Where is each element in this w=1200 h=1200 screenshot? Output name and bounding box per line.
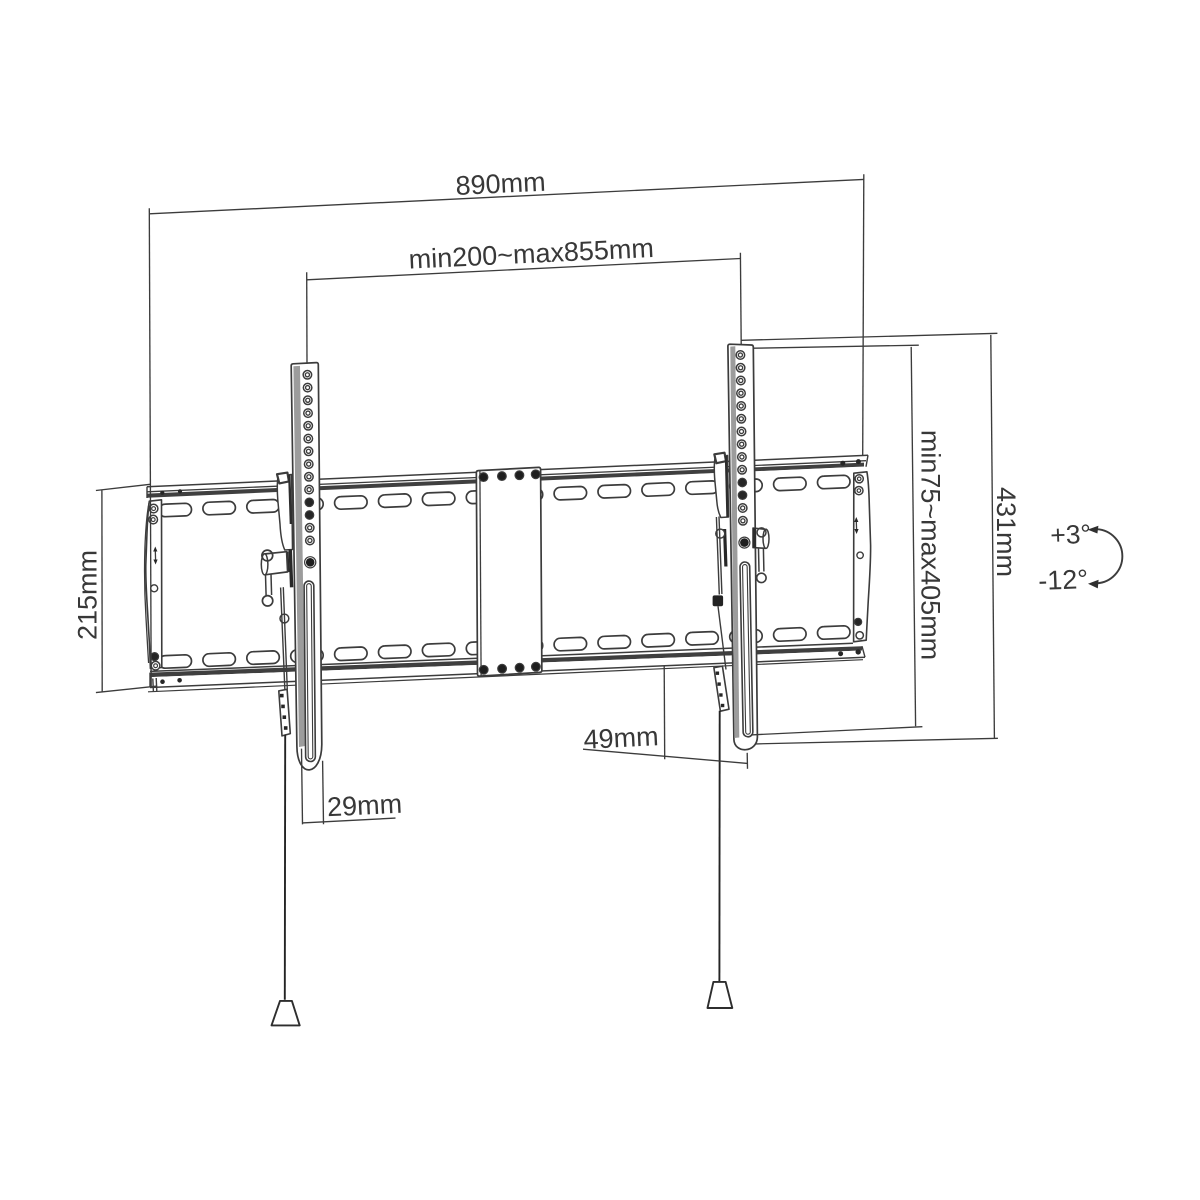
- svg-text:215mm: 215mm: [73, 550, 103, 640]
- svg-text:890mm: 890mm: [455, 167, 546, 201]
- svg-text:+3°: +3°: [1050, 519, 1092, 551]
- svg-text:431mm: 431mm: [991, 487, 1021, 577]
- svg-text:49mm: 49mm: [583, 721, 659, 755]
- svg-text:-12°: -12°: [1038, 564, 1089, 596]
- svg-text:29mm: 29mm: [326, 789, 402, 823]
- svg-text:min75~max405mm: min75~max405mm: [916, 430, 946, 660]
